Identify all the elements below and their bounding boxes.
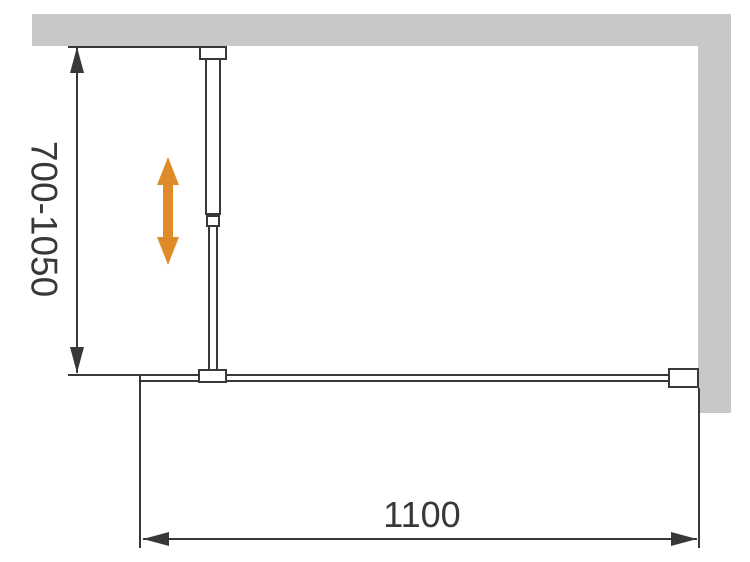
installation-diagram: 700-1050 1100 [0, 0, 750, 562]
adjustability-arrow-shaft [163, 183, 173, 240]
width-dim-extension-left [139, 382, 141, 548]
width-dim-arrow-right-icon [671, 532, 697, 546]
adjustability-arrow-up-head [157, 157, 179, 185]
ceiling-bracket [199, 46, 227, 60]
support-rod-upper-tube [205, 60, 221, 215]
wall-right [698, 46, 731, 413]
width-dim-arrow-left-icon [143, 532, 169, 546]
glass-panel-left-cap [139, 374, 141, 383]
width-dim-extension-right [698, 388, 700, 548]
adjustability-arrow-down-head [157, 237, 179, 265]
support-rod-lower-tube [208, 227, 218, 369]
wall-bracket [668, 368, 699, 388]
rod-glass-connector [198, 369, 227, 383]
height-dim-arrow-up-icon [70, 47, 84, 73]
height-dim-extension-top [68, 46, 199, 48]
height-dim-extension-bottom [68, 374, 141, 376]
telescopic-collar [206, 215, 220, 227]
height-dim-arrow-down-icon [70, 347, 84, 373]
width-dimension-label: 1100 [383, 497, 460, 533]
height-dim-line [76, 48, 78, 373]
width-dim-line [143, 538, 697, 540]
height-dimension-label: 700-1050 [26, 141, 63, 297]
wall-ceiling [32, 14, 731, 46]
